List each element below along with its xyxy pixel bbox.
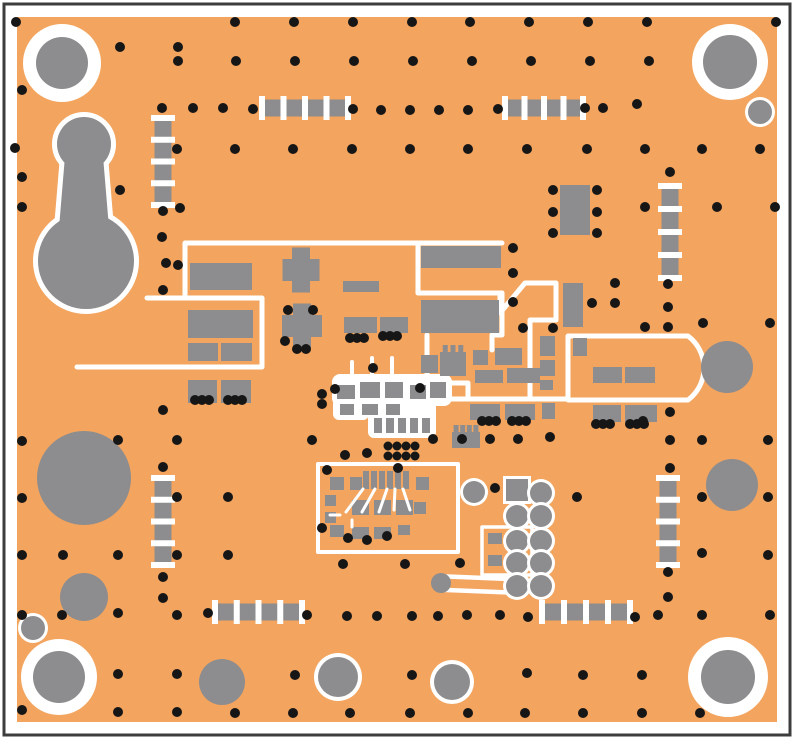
via: [158, 285, 168, 295]
via: [755, 144, 765, 154]
smd-pad: [421, 300, 499, 333]
via: [592, 207, 602, 217]
via: [348, 17, 358, 27]
via: [763, 550, 773, 560]
thermal-via: [384, 442, 393, 451]
via: [485, 434, 495, 444]
smd-pad: [422, 418, 430, 433]
via: [372, 611, 382, 621]
mount-hole: [703, 35, 757, 89]
via: [115, 185, 125, 195]
header-pin: [463, 481, 485, 503]
via: [330, 384, 340, 394]
via: [697, 144, 707, 154]
comb-pad-tooth: [473, 425, 478, 433]
via: [17, 493, 27, 503]
via: [640, 144, 650, 154]
via: [548, 323, 558, 333]
plain-drill-pad: [60, 573, 108, 621]
via: [231, 56, 241, 66]
via: [467, 56, 477, 66]
via: [17, 550, 27, 560]
thermal-via: [393, 442, 402, 451]
via: [113, 608, 123, 618]
via: [462, 610, 472, 620]
via: [17, 436, 27, 446]
via: [455, 558, 465, 568]
via: [518, 323, 528, 333]
via: [433, 611, 443, 621]
via: [592, 228, 602, 238]
comb-pad-tooth: [458, 345, 463, 353]
smd-pad: [344, 317, 377, 333]
via: [230, 144, 240, 154]
via: [548, 185, 558, 195]
via: [522, 668, 532, 678]
via: [493, 104, 503, 114]
via: [495, 610, 505, 620]
header-pin: [530, 530, 552, 552]
via: [317, 523, 327, 533]
header-pin: [530, 575, 552, 597]
via: [697, 610, 707, 620]
header-pin: [530, 505, 552, 527]
via: [338, 559, 348, 569]
via: [223, 550, 233, 560]
smd-pad: [360, 382, 380, 398]
comb-pad-tooth: [443, 345, 448, 353]
via: [172, 435, 182, 445]
box-trace: [394, 489, 395, 510]
via: [712, 202, 722, 212]
via: [17, 202, 27, 212]
smd-pad: [495, 348, 522, 365]
smd-pad: [330, 525, 344, 537]
smd-pad: [488, 555, 502, 566]
via: [204, 395, 214, 405]
smd-pad: [362, 404, 378, 415]
via: [771, 17, 781, 27]
smd-pad: [416, 477, 429, 490]
via: [598, 103, 608, 113]
cross-pad-horizontal: [282, 315, 322, 337]
thermal-via: [393, 452, 402, 461]
via: [644, 56, 654, 66]
via: [640, 322, 650, 332]
smd-pad: [573, 338, 587, 356]
via: [637, 670, 647, 680]
via: [663, 567, 673, 577]
via: [582, 144, 592, 154]
via: [665, 435, 675, 445]
comb-pad-tooth: [454, 425, 459, 433]
smd-pad: [593, 367, 622, 383]
smd-pad: [563, 283, 583, 327]
via: [491, 416, 501, 426]
via: [520, 708, 530, 718]
via: [340, 450, 350, 460]
comb-pad-tooth: [451, 345, 456, 353]
small-ring-pad: [434, 664, 470, 700]
via: [545, 432, 555, 442]
smd-pad: [188, 343, 218, 361]
via: [343, 533, 353, 543]
smd-pad: [386, 418, 394, 433]
via: [408, 56, 418, 66]
via: [17, 172, 27, 182]
smd-pad: [540, 380, 553, 390]
via: [289, 17, 299, 27]
via: [463, 708, 473, 718]
via: [322, 465, 332, 475]
via: [317, 399, 327, 409]
via: [172, 669, 182, 679]
plain-drill-pad: [199, 659, 245, 705]
via: [173, 260, 183, 270]
via: [347, 144, 357, 154]
small-ring-pad: [318, 657, 358, 697]
header-pin: [506, 505, 528, 527]
smd-pad: [190, 263, 252, 290]
via: [548, 207, 558, 217]
via: [513, 434, 523, 444]
via: [763, 435, 773, 445]
smd-pad: [475, 370, 503, 383]
via: [572, 492, 582, 502]
thermal-via: [411, 452, 420, 461]
header-pin: [530, 552, 552, 574]
via: [172, 550, 182, 560]
mount-hole: [36, 37, 88, 89]
via: [173, 42, 183, 52]
via: [770, 202, 780, 212]
smd-pad: [540, 336, 555, 356]
via: [382, 531, 392, 541]
via: [522, 144, 532, 154]
via: [157, 103, 167, 113]
via: [368, 363, 378, 373]
via: [158, 462, 168, 472]
via: [302, 610, 312, 620]
via: [434, 105, 444, 115]
via: [665, 167, 675, 177]
via: [463, 144, 473, 154]
via: [203, 608, 213, 618]
via: [400, 559, 410, 569]
via: [188, 103, 198, 113]
smd-pad: [340, 404, 354, 415]
via: [290, 56, 300, 66]
via: [223, 492, 233, 502]
via: [392, 331, 402, 341]
via: [58, 550, 68, 560]
smd-pad: [421, 246, 501, 268]
via: [697, 435, 707, 445]
via: [765, 610, 775, 620]
via: [592, 185, 602, 195]
smd-pad: [337, 385, 355, 399]
mount-hole: [701, 650, 755, 704]
via: [632, 99, 642, 109]
smd-pad: [371, 471, 377, 489]
via: [642, 17, 652, 27]
via: [10, 143, 20, 153]
comb-pad-tooth: [460, 425, 465, 433]
smd-pad: [188, 310, 253, 338]
via: [463, 105, 473, 115]
via: [640, 202, 650, 212]
via: [587, 298, 597, 308]
thermal-via: [384, 452, 393, 461]
smd-pad: [385, 382, 403, 398]
via: [362, 448, 372, 458]
smd-pad: [542, 403, 555, 419]
via: [407, 611, 417, 621]
via: [663, 302, 673, 312]
via: [580, 103, 590, 113]
header-pin: [530, 482, 552, 504]
via: [376, 105, 386, 115]
via: [428, 434, 438, 444]
via: [763, 492, 773, 502]
header-pin: [506, 530, 528, 552]
via: [695, 708, 705, 718]
mount-hole: [33, 651, 85, 703]
smd-pad: [379, 471, 385, 489]
pcb-screenshot: [0, 0, 794, 739]
smd-pad: [430, 382, 446, 398]
sot-component: [560, 185, 590, 235]
via: [288, 708, 298, 718]
smd-pad: [540, 360, 555, 376]
smd-pad: [221, 343, 252, 361]
smd-pad: [421, 355, 438, 373]
via: [218, 103, 228, 113]
smd-pad: [507, 368, 540, 383]
smd-pad: [330, 477, 344, 490]
via: [301, 344, 311, 354]
smd-pad: [473, 350, 488, 365]
via: [307, 435, 317, 445]
via: [345, 708, 355, 718]
via: [605, 419, 615, 429]
via: [583, 17, 593, 27]
via: [158, 593, 168, 603]
smd-pad: [350, 477, 362, 490]
via: [158, 572, 168, 582]
via: [173, 56, 183, 66]
via: [405, 708, 415, 718]
thermal-via: [411, 442, 420, 451]
via: [17, 85, 27, 95]
via: [172, 492, 182, 502]
small-ring-pad: [748, 100, 772, 124]
smd-pad: [343, 281, 379, 292]
via: [362, 535, 372, 545]
via: [348, 104, 358, 114]
via: [237, 395, 247, 405]
via: [161, 258, 171, 268]
dumbbell-end-pad: [431, 573, 451, 593]
cross-pad-horizontal: [283, 259, 320, 281]
via: [630, 612, 640, 622]
via: [248, 104, 258, 114]
via: [175, 203, 185, 213]
plain-drill-pad: [706, 459, 758, 511]
header-square-pad: [506, 479, 528, 501]
smd-pad: [410, 418, 418, 433]
via: [653, 610, 663, 620]
via: [115, 42, 125, 52]
smd-pad: [625, 367, 655, 383]
via: [308, 305, 318, 315]
smd-pad: [380, 317, 408, 333]
via: [610, 278, 620, 288]
via: [521, 416, 531, 426]
comb-pad-tooth: [467, 425, 472, 433]
via: [230, 708, 240, 718]
via: [638, 416, 648, 426]
via: [113, 435, 123, 445]
rf-connector-pad: [701, 341, 753, 393]
via: [292, 344, 302, 354]
via: [508, 268, 518, 278]
smd-pad: [414, 502, 426, 514]
via: [157, 232, 167, 242]
via: [578, 670, 588, 680]
smd-pad: [387, 471, 393, 489]
smd-pad: [398, 525, 410, 535]
smd-pad: [403, 471, 409, 489]
via: [172, 707, 182, 717]
smd-pad: [325, 495, 336, 506]
via: [524, 17, 534, 27]
via: [17, 705, 27, 715]
via: [415, 383, 425, 393]
via: [698, 318, 708, 328]
thermal-via: [402, 452, 411, 461]
via: [665, 463, 675, 473]
via: [113, 669, 123, 679]
via: [317, 389, 327, 399]
via: [407, 670, 417, 680]
via: [465, 17, 475, 27]
via: [17, 610, 27, 620]
via: [349, 56, 359, 66]
header-pin: [506, 552, 528, 574]
via: [665, 407, 675, 417]
via: [765, 318, 775, 328]
via: [113, 550, 123, 560]
thermal-via: [402, 442, 411, 451]
smd-pad: [488, 533, 502, 544]
via: [359, 333, 369, 343]
via: [578, 708, 588, 718]
smd-pad: [398, 418, 406, 433]
via: [280, 336, 290, 346]
via: [697, 548, 707, 558]
via: [548, 228, 558, 238]
smd-pad: [395, 471, 401, 489]
teardrop-pad-bottom-fill: [38, 213, 134, 309]
smd-pad: [374, 418, 382, 433]
pcb-board-layout: [0, 0, 794, 739]
via: [585, 56, 595, 66]
via: [288, 144, 298, 154]
via: [663, 279, 673, 289]
via: [610, 298, 620, 308]
via: [405, 144, 415, 154]
smd-pad: [386, 404, 400, 415]
via: [113, 707, 123, 717]
via: [663, 322, 673, 332]
via: [697, 492, 707, 502]
via: [490, 483, 500, 493]
via: [407, 17, 417, 27]
via: [457, 434, 467, 444]
comb-pad-body: [440, 352, 466, 376]
via: [508, 243, 518, 253]
smd-pad: [363, 471, 369, 489]
via: [393, 463, 403, 473]
via: [663, 592, 673, 602]
via: [342, 611, 352, 621]
via: [11, 17, 21, 27]
via: [172, 610, 182, 620]
plain-drill-pad: [37, 431, 131, 525]
via: [526, 56, 536, 66]
via: [283, 305, 293, 315]
via: [508, 297, 518, 307]
via: [523, 612, 533, 622]
via: [405, 105, 415, 115]
via: [158, 206, 168, 216]
via: [57, 610, 67, 620]
via: [290, 670, 300, 680]
small-ring-pad: [21, 616, 45, 640]
header-pin: [506, 575, 528, 597]
via: [172, 144, 182, 154]
via: [230, 17, 240, 27]
via: [637, 708, 647, 718]
via: [158, 405, 168, 415]
